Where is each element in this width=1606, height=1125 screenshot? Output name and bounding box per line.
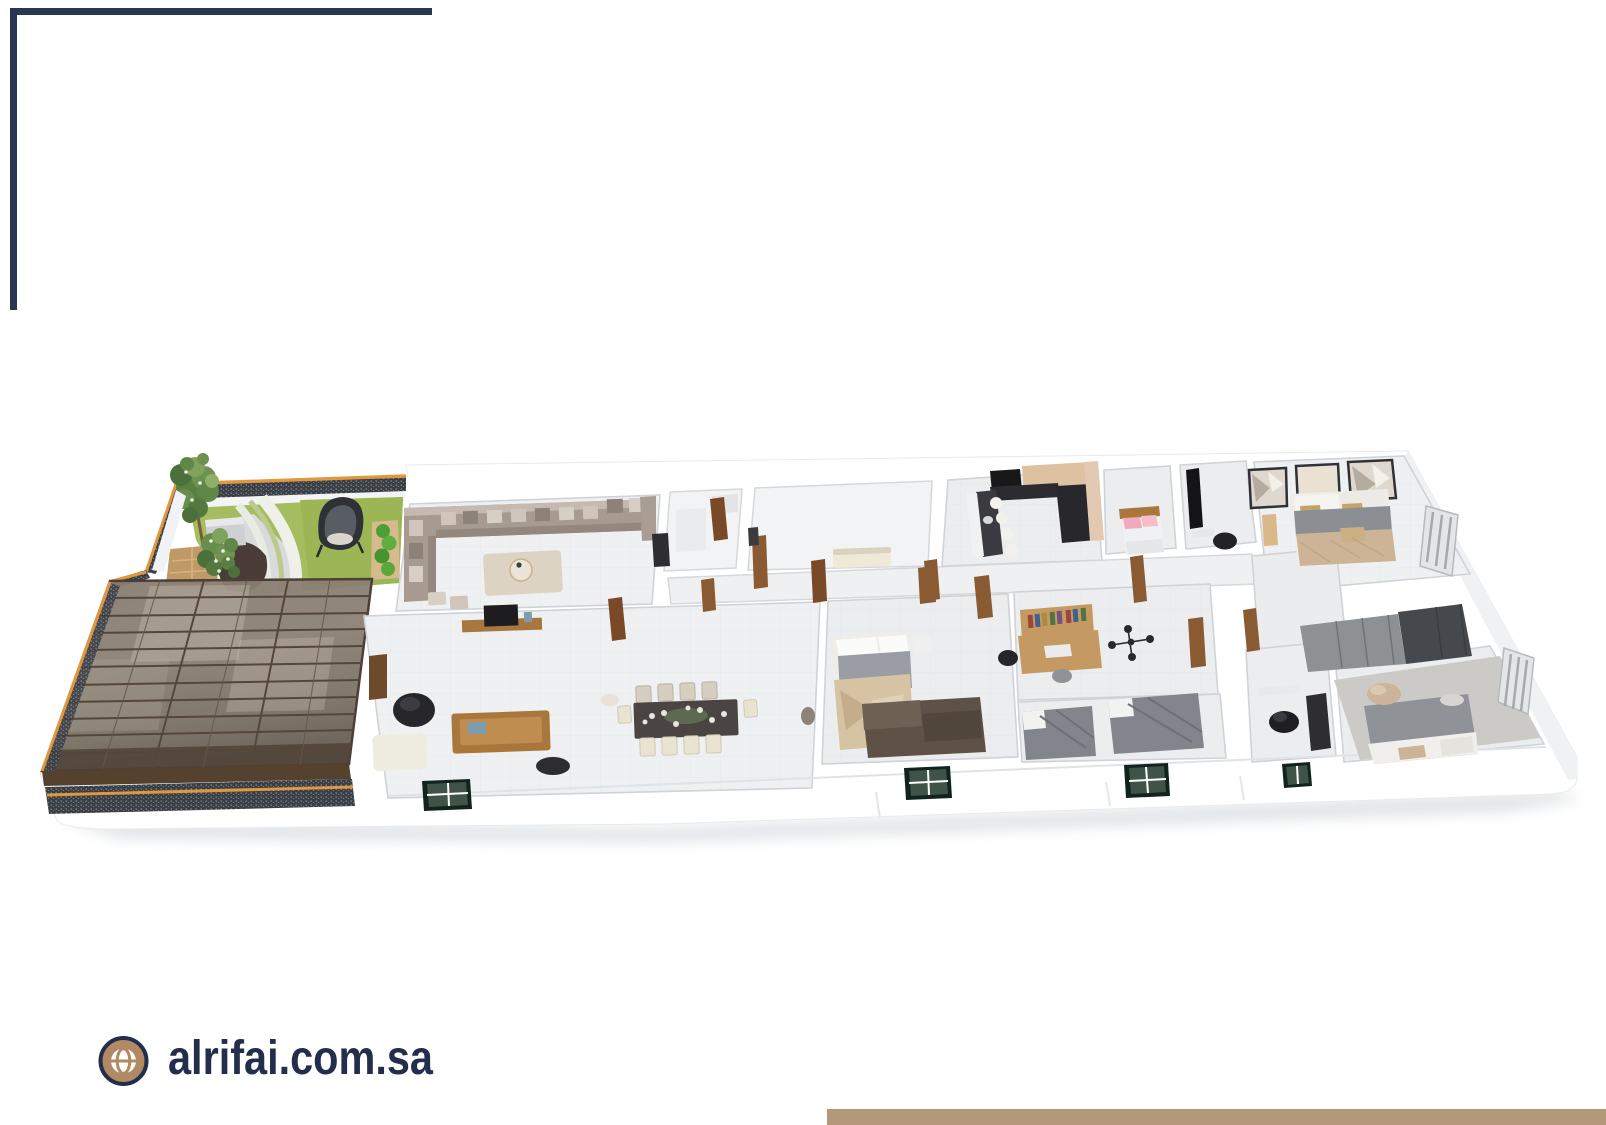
svg-text:alrifai.com.sa: alrifai.com.sa <box>168 1032 433 1085</box>
